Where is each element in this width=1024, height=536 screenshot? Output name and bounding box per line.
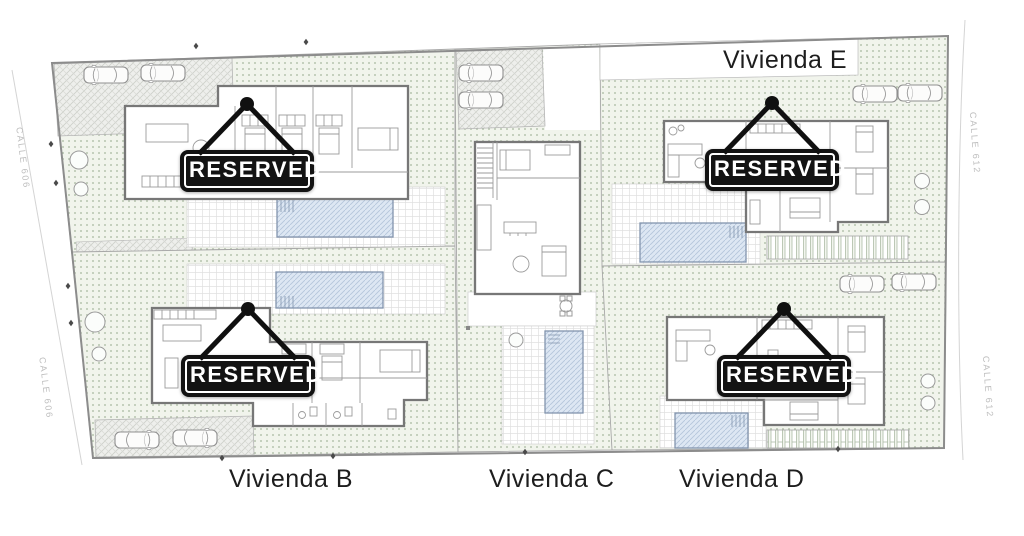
- pergola: [767, 430, 909, 448]
- plot-center[interactable]: [455, 44, 612, 452]
- reserved-sign-bottom-right[interactable]: RESERVED: [712, 301, 856, 397]
- sign-strings: [176, 301, 320, 361]
- house-outline: [475, 142, 580, 294]
- label-vivienda-e: Vivienda E: [723, 47, 847, 73]
- patio: [468, 292, 596, 326]
- site-plan: CALLE 606 CALLE 606 CALLE 612 CALLE 612 …: [0, 0, 1024, 536]
- pool: [640, 223, 746, 262]
- pool: [675, 413, 748, 448]
- reserved-board: RESERVED: [181, 355, 315, 397]
- sign-strings: [175, 96, 319, 156]
- pool: [545, 331, 583, 413]
- reserved-sign-bottom-left[interactable]: RESERVED: [176, 301, 320, 397]
- site-plan-drawing: [0, 0, 1024, 536]
- pool: [277, 199, 393, 237]
- reserved-text: RESERVED: [726, 362, 859, 387]
- reserved-board: RESERVED: [180, 150, 314, 192]
- label-vivienda-b: Vivienda B: [229, 466, 353, 492]
- sign-nail-icon: [240, 97, 254, 111]
- reserved-board: RESERVED: [705, 149, 839, 191]
- reserved-board: RESERVED: [717, 355, 851, 397]
- pergola: [767, 236, 908, 259]
- label-vivienda-c: Vivienda C: [489, 466, 614, 492]
- sign-nail-icon: [765, 96, 779, 110]
- sign-nail-icon: [241, 302, 255, 316]
- driveway: [456, 48, 545, 129]
- reserved-text: RESERVED: [190, 362, 323, 387]
- tree-icon: [509, 333, 523, 347]
- label-vivienda-d: Vivienda D: [679, 466, 804, 492]
- reserved-sign-top-left[interactable]: RESERVED: [175, 96, 319, 192]
- sign-strings: [712, 301, 856, 361]
- reserved-text: RESERVED: [714, 156, 847, 181]
- sign-nail-icon: [777, 302, 791, 316]
- reserved-sign-top-right[interactable]: RESERVED: [700, 95, 844, 191]
- sign-strings: [700, 95, 844, 155]
- reserved-text: RESERVED: [189, 157, 322, 182]
